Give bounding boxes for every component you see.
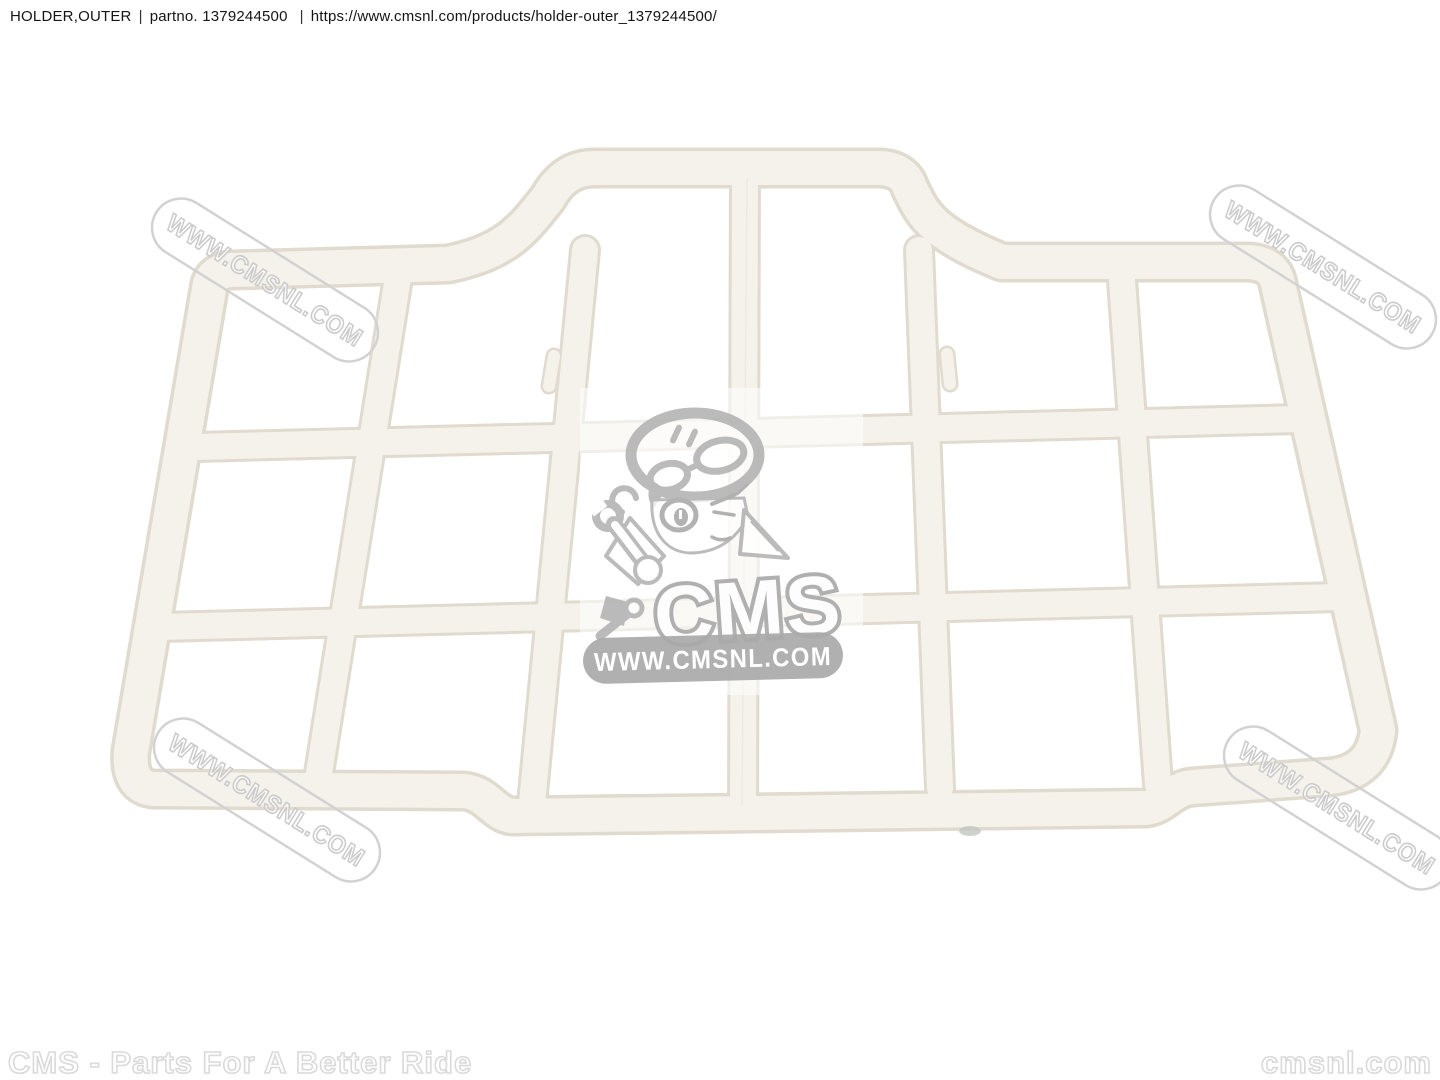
bar-v5 xyxy=(1122,280,1158,784)
footer-site-link: cmsnl.com xyxy=(1261,1045,1432,1080)
bar-v2 xyxy=(531,250,585,814)
blemish-dot xyxy=(959,826,981,836)
small-spanner-head xyxy=(626,600,642,616)
product-photo: WWW.CMSNL.COM xyxy=(0,0,1440,1080)
stub-left xyxy=(549,356,554,386)
stub-right xyxy=(947,354,950,384)
page: HOLDER,OUTER|partno. 1379244500|https://… xyxy=(0,0,1440,1080)
footer-tagline: CMS - Parts For A Better Ride xyxy=(8,1045,472,1080)
cms-logo: CMS WWW.CMSNL.COM xyxy=(580,388,863,695)
mascot-pupil-highlight xyxy=(679,510,682,519)
cms-banner-text: WWW.CMSNL.COM xyxy=(594,641,833,677)
watermark-bottom-right xyxy=(1213,716,1440,901)
cms-banner: WWW.CMSNL.COM xyxy=(582,632,843,685)
